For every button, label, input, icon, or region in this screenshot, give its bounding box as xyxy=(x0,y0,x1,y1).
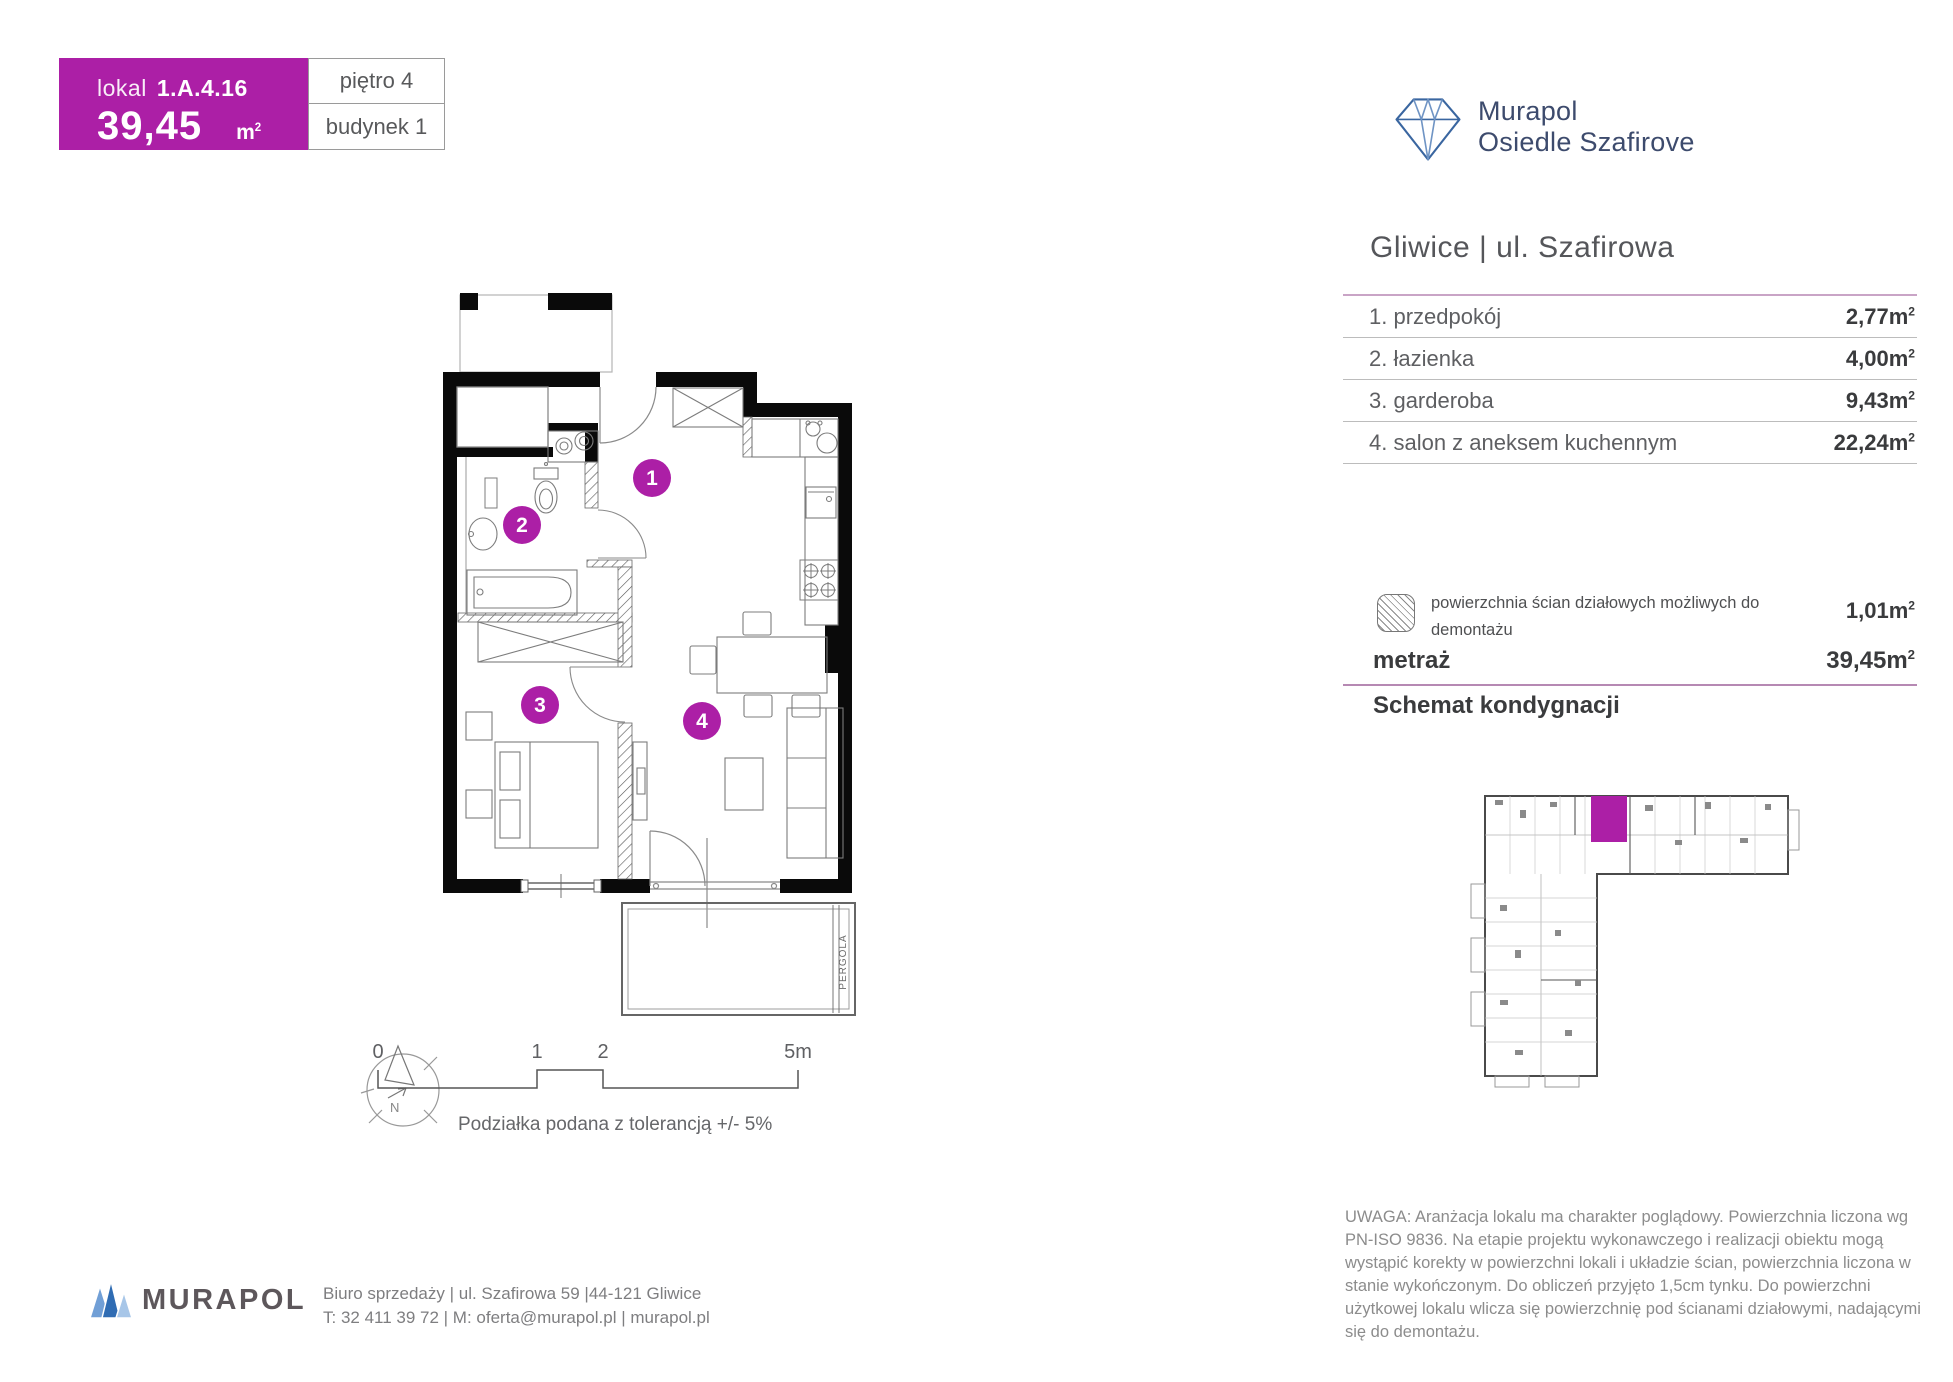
room-name: 4. salon z aneksem kuchennym xyxy=(1369,430,1677,456)
room-area: 4,00m2 xyxy=(1846,346,1917,372)
compass-north-label: N xyxy=(390,1100,399,1115)
building-label: budynek 1 xyxy=(326,114,428,140)
table-row: 2. łazienka 4,00m2 xyxy=(1343,338,1917,380)
diamond-logo-icon xyxy=(1387,90,1469,166)
room-1-badge: 1 xyxy=(646,467,658,490)
dining-table xyxy=(690,612,827,717)
scale-tick-2: 2 xyxy=(597,1041,608,1063)
scale-tick-0: 0 xyxy=(372,1041,383,1063)
toilet-icon xyxy=(534,463,558,514)
metraz-row: metraż 39,45m2 xyxy=(1343,638,1917,686)
bath-shelf xyxy=(485,478,497,508)
table-row: 1. przedpokój 2,77m2 xyxy=(1343,296,1917,338)
coffee-table xyxy=(725,758,763,810)
table-row: 3. garderoba 9,43m2 xyxy=(1343,380,1917,422)
apartment-card-page: lokal1.A.4.16 39,45m2 piętro 4 budynek 1… xyxy=(0,0,1953,1382)
building-schematic xyxy=(1455,780,1805,1092)
table-row: 4. salon z aneksem kuchennym 22,24m2 xyxy=(1343,422,1917,464)
metraz-value: 39,45m2 xyxy=(1826,647,1917,675)
entrance-door xyxy=(600,387,656,443)
partition-note: powierzchnia ścian działowych możliwych … xyxy=(1343,590,1917,644)
pergola-label: PERGOLA xyxy=(838,934,849,989)
room-table: 1. przedpokój 2,77m2 2. łazienka 4,00m2 … xyxy=(1343,294,1917,464)
balcony: PERGOLA xyxy=(622,903,855,1015)
location-heading: Gliwice | ul. Szafirowa xyxy=(1370,231,1674,265)
room-name: 1. przedpokój xyxy=(1369,304,1501,330)
footer-brand-name: MURAPOL xyxy=(142,1284,306,1317)
room-2-badge: 2 xyxy=(516,514,528,537)
footer-phone-email: T: 32 411 39 72 | M: oferta@murapol.pl |… xyxy=(323,1306,710,1330)
balcony-door xyxy=(650,831,780,928)
sofa-icon xyxy=(787,708,843,858)
room-area: 9,43m2 xyxy=(1846,388,1917,414)
unit-area-unit: m2 xyxy=(236,121,261,144)
room-area: 2,77m2 xyxy=(1846,304,1917,330)
garderoba-door xyxy=(570,667,625,722)
unit-number-line: lokal1.A.4.16 xyxy=(97,75,308,102)
cooktop-icon xyxy=(800,560,838,600)
building-box: budynek 1 xyxy=(308,103,445,150)
corridor-outline xyxy=(460,293,612,372)
room-3-badge: 3 xyxy=(534,694,546,717)
schematic-title: Schemat kondygnacji xyxy=(1373,692,1620,720)
room-name: 2. łazienka xyxy=(1369,346,1474,372)
oven-icon xyxy=(806,487,836,518)
footer-contact: Biuro sprzedaży | ul. Szafirowa 59 |44-1… xyxy=(323,1282,710,1330)
shaft xyxy=(457,387,548,447)
window xyxy=(521,874,601,898)
metraz-label: metraż xyxy=(1373,647,1450,675)
bed-icon xyxy=(466,712,598,848)
entry-wardrobe xyxy=(673,388,743,427)
partition-label: powierzchnia ścian działowych możliwych … xyxy=(1431,590,1803,644)
brand-name: Murapol Osiedle Szafirove xyxy=(1478,96,1695,158)
tv-stand xyxy=(633,742,647,820)
bathroom-door xyxy=(598,510,646,558)
demountable-walls xyxy=(458,417,752,879)
brand-line2: Osiedle Szafirove xyxy=(1478,127,1695,158)
brand-line1: Murapol xyxy=(1478,96,1695,127)
floor-box: piętro 4 xyxy=(308,58,445,104)
footer-address: Biuro sprzedaży | ul. Szafirowa 59 |44-1… xyxy=(323,1282,710,1306)
floor-plan: PERGOLA 1 2 3 4 N 0 1 xyxy=(330,285,890,1145)
unit-header-box: lokal1.A.4.16 39,45m2 xyxy=(59,58,308,150)
unit-area-line: 39,45m2 xyxy=(97,104,308,149)
bathtub-icon xyxy=(467,570,577,615)
room-name: 3. garderoba xyxy=(1369,388,1494,414)
sink-icon xyxy=(469,518,498,550)
scale-tolerance-note: Podziałka podana z tolerancją +/- 5% xyxy=(458,1114,772,1135)
highlighted-unit xyxy=(1591,796,1627,842)
lokal-label: lokal xyxy=(97,75,147,101)
floor-label: piętro 4 xyxy=(340,68,413,94)
room-area: 22,24m2 xyxy=(1834,430,1917,456)
wardrobe xyxy=(478,622,623,662)
scale-tick-1: 1 xyxy=(531,1041,542,1063)
unit-number: 1.A.4.16 xyxy=(157,75,248,101)
murapol-logo-icon xyxy=(88,1280,134,1320)
kitchen-counter xyxy=(752,419,838,625)
unit-area-value: 39,45 xyxy=(97,104,202,148)
room-4-badge: 4 xyxy=(696,710,708,733)
disclaimer-text: UWAGA: Aranżacja lokalu ma charakter pog… xyxy=(1345,1206,1923,1344)
scale-tick-5m: 5m xyxy=(784,1041,812,1063)
hatch-legend-icon xyxy=(1377,594,1415,632)
